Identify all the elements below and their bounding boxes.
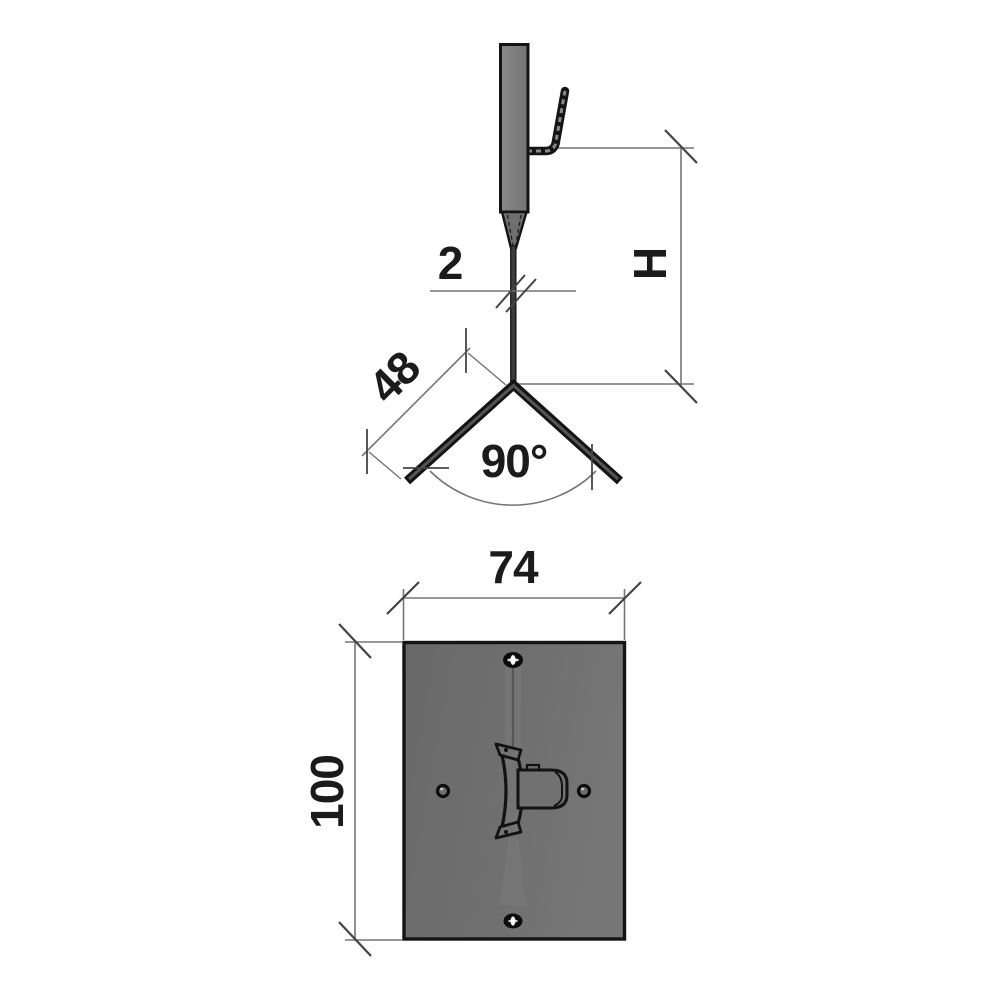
- arm-length-extension-bottom: [369, 452, 401, 479]
- drawing-geometry: [0, 0, 1000, 1000]
- plate-height-label: 100: [304, 755, 350, 829]
- taper-tip: [502, 212, 527, 248]
- plate-view: [339, 582, 641, 956]
- height-label: H: [627, 248, 673, 280]
- screw-bottom-icon: [504, 914, 523, 929]
- spike-stem: [511, 246, 516, 388]
- pinhole-left-icon: [438, 786, 449, 797]
- screw-top-icon: [503, 652, 523, 668]
- plate-width-label: 74: [488, 544, 537, 590]
- clip-flange-top-hole: [504, 748, 508, 752]
- pinhole-right-icon: [579, 786, 590, 797]
- holder-bar: [501, 45, 529, 213]
- clip-flange-bottom-hole: [504, 830, 508, 834]
- stem-width-label: 2: [438, 240, 463, 286]
- leg-angle-label: 90°: [481, 438, 548, 484]
- technical-drawing-canvas: 2 H 48 90° 74 100: [0, 0, 1000, 1000]
- arm-length-extension-top: [468, 353, 506, 385]
